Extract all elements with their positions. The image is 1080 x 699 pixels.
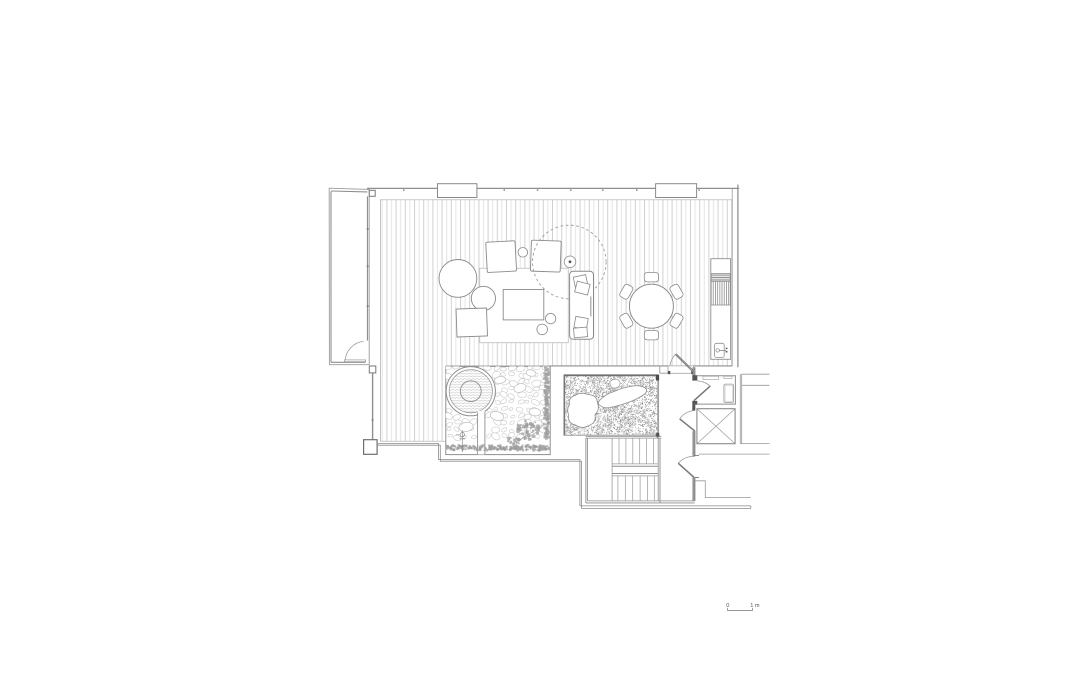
svg-text:1 m: 1 m [750,603,760,609]
svg-text:0: 0 [726,603,729,609]
